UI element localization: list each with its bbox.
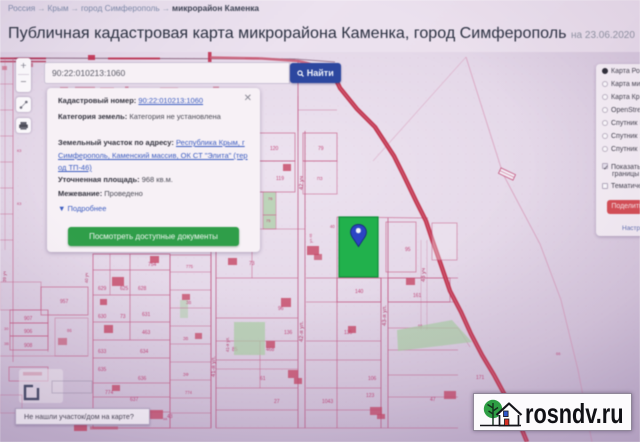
svg-text:908: 908 bbox=[24, 343, 33, 349]
svg-text:463: 463 bbox=[142, 330, 151, 336]
svg-text:ПЗ: ПЗ bbox=[317, 176, 323, 181]
svg-text:631: 631 bbox=[142, 312, 151, 318]
svg-text:123: 123 bbox=[366, 393, 375, 399]
svg-text:630: 630 bbox=[98, 314, 107, 320]
svg-text:ЗВ: ЗВ bbox=[183, 336, 189, 341]
svg-text:66: 66 bbox=[556, 351, 561, 356]
svg-text:73: 73 bbox=[249, 261, 255, 267]
svg-text:774: 774 bbox=[185, 390, 193, 395]
svg-text:906: 906 bbox=[24, 329, 33, 335]
svg-text:95: 95 bbox=[405, 247, 411, 253]
svg-text:40 уч: 40 уч bbox=[84, 273, 89, 283]
svg-text:957: 957 bbox=[60, 299, 69, 305]
svg-text:ЗВ: ЗВ bbox=[186, 300, 192, 305]
svg-text:79: 79 bbox=[318, 146, 324, 152]
svg-text:КЗ: КЗ bbox=[17, 149, 22, 153]
svg-text:39 уч: 39 уч bbox=[2, 270, 7, 282]
svg-text:42 уч: 42 уч bbox=[299, 176, 305, 190]
svg-text:637: 637 bbox=[130, 397, 139, 403]
svg-text:136: 136 bbox=[284, 330, 293, 336]
svg-text:171: 171 bbox=[476, 375, 485, 381]
svg-text:1043: 1043 bbox=[322, 399, 333, 405]
svg-text:76: 76 bbox=[268, 196, 273, 201]
svg-text:ЗФ: ЗФ bbox=[183, 372, 189, 377]
svg-text:КЗ: КЗ bbox=[17, 202, 22, 206]
svg-text:40: 40 bbox=[330, 224, 335, 229]
svg-text:633: 633 bbox=[98, 349, 107, 355]
svg-text:628: 628 bbox=[138, 286, 147, 292]
svg-text:140: 140 bbox=[355, 289, 364, 295]
svg-text:907: 907 bbox=[24, 316, 33, 322]
svg-text:161: 161 bbox=[413, 293, 422, 299]
svg-text:119: 119 bbox=[276, 176, 284, 182]
svg-text:634: 634 bbox=[140, 349, 149, 355]
svg-text:106: 106 bbox=[368, 376, 377, 382]
svg-text:27: 27 bbox=[274, 399, 280, 405]
svg-text:42-я ул.: 42-я ул. bbox=[299, 321, 305, 342]
svg-text:73: 73 bbox=[120, 314, 126, 320]
svg-text:75: 75 bbox=[266, 218, 271, 223]
svg-text:86: 86 bbox=[67, 328, 72, 333]
svg-text:3В: 3В bbox=[4, 341, 9, 346]
svg-text:120: 120 bbox=[270, 146, 279, 152]
svg-text:rosndv.ru: rosndv.ru bbox=[525, 400, 624, 430]
svg-text:635: 635 bbox=[98, 367, 107, 373]
svg-text:61: 61 bbox=[260, 376, 266, 382]
svg-text:47: 47 bbox=[430, 397, 436, 403]
svg-text:41-я ул.: 41-я ул. bbox=[225, 337, 230, 352]
svg-text:43 уч: 43 уч bbox=[421, 268, 427, 282]
svg-text:775: 775 bbox=[186, 264, 194, 269]
svg-text:629: 629 bbox=[98, 286, 107, 292]
svg-text:636: 636 bbox=[138, 376, 147, 382]
svg-text:43-я ул.: 43-я ул. bbox=[382, 305, 388, 326]
svg-text:41-я ул.: 41-я ул. bbox=[211, 356, 217, 377]
svg-text:30: 30 bbox=[4, 326, 9, 331]
svg-text:ул 46: ул 46 bbox=[309, 234, 313, 243]
svg-text:625: 625 bbox=[120, 286, 129, 292]
